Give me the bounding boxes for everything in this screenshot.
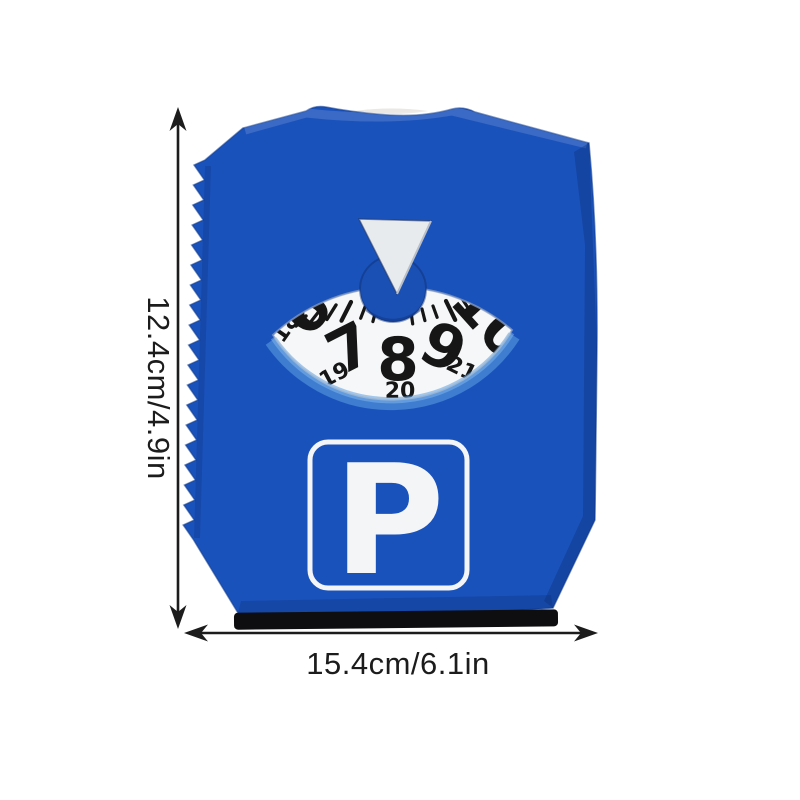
pointer-assembly bbox=[359, 219, 431, 322]
height-dimension-label: 12.4cm/4.9in bbox=[140, 296, 176, 480]
parking-sign-letter: P bbox=[333, 432, 444, 609]
width-dimension-label: 15.4cm/6.1in bbox=[306, 646, 490, 682]
rubber-base-strip bbox=[234, 609, 558, 629]
parking-sign: P bbox=[310, 432, 467, 609]
product-photo: 6 7 8 9 10 18 19 20 21 bbox=[0, 0, 800, 800]
